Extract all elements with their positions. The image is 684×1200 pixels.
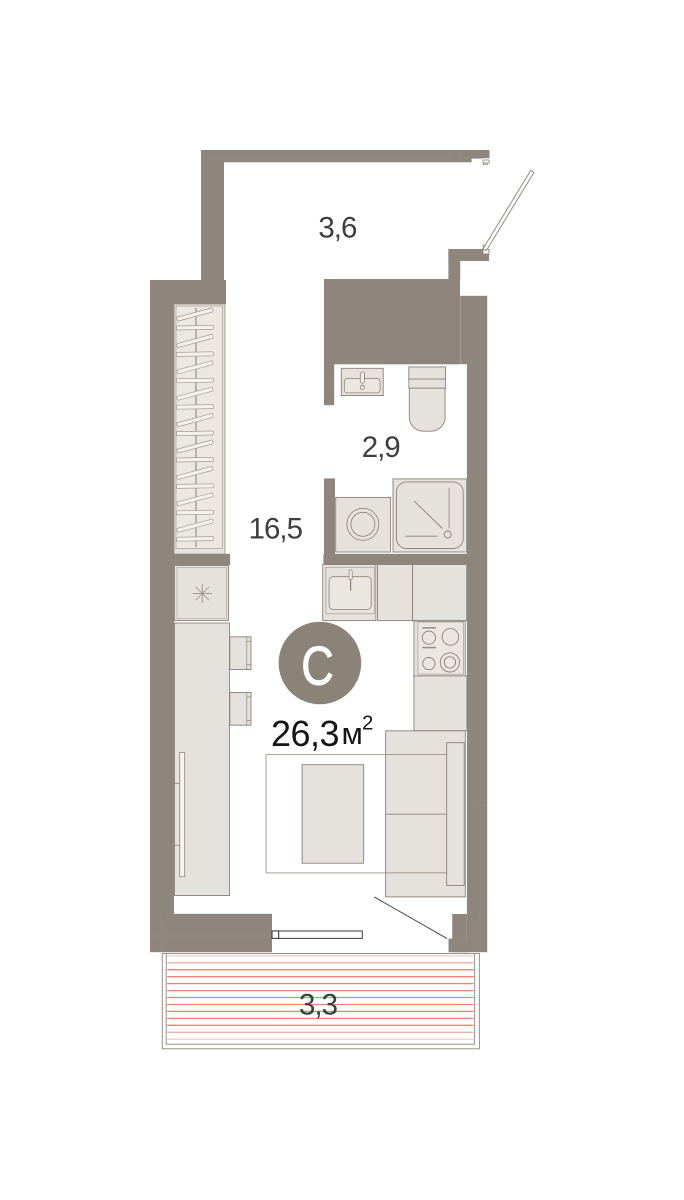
svg-text:С: С [301, 634, 334, 696]
svg-text:26,3: 26,3 [271, 713, 339, 754]
svg-text:3,6: 3,6 [318, 211, 357, 244]
svg-text:3,3: 3,3 [299, 989, 338, 1022]
svg-text:2: 2 [362, 712, 373, 735]
svg-text:16,5: 16,5 [249, 513, 303, 546]
svg-text:м: м [342, 716, 363, 751]
svg-text:2,9: 2,9 [362, 431, 401, 464]
